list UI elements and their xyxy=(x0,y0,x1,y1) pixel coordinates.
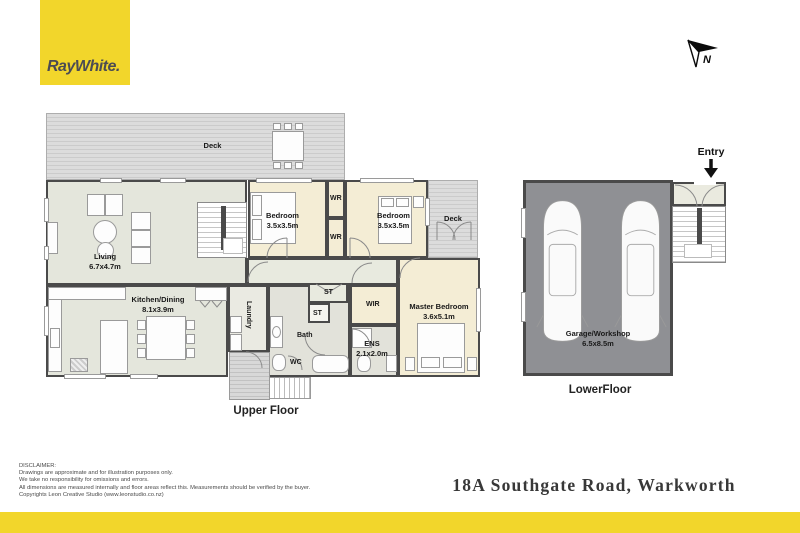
label-laundry: Laundry xyxy=(245,301,252,329)
label-deck-top: Deck xyxy=(185,141,240,151)
entry-title: Entry xyxy=(685,146,737,158)
label-st-small: ST xyxy=(313,310,322,317)
label-kitchen-dining: Kitchen/Dining 8.1x3.9m xyxy=(108,295,208,315)
disclaimer-line: All dimensions are measured internally a… xyxy=(19,485,310,492)
north-letter: N xyxy=(703,54,712,66)
disclaimer-line: Copyrights Leon Creative Studio (www.leo… xyxy=(19,492,310,499)
label-master-bedroom: Master Bedroom 3.6x5.1m xyxy=(395,302,483,322)
floorplan-page: RayWhite. N xyxy=(0,0,800,533)
label-wr-top: WR xyxy=(330,195,342,202)
disclaimer-line: Drawings are approximate and for illustr… xyxy=(19,470,310,477)
north-compass-icon: N xyxy=(686,38,728,72)
disclaimer-line: DISCLAIMER: xyxy=(19,463,310,470)
label-wir: WIR xyxy=(366,301,380,308)
label-wc: WC xyxy=(290,359,302,366)
disclaimer-line: We take no responsibility for omissions … xyxy=(19,477,310,484)
label-bath: Bath xyxy=(297,332,313,339)
disclaimer: DISCLAIMER: Drawings are approximate and… xyxy=(19,463,310,499)
entry-arrow-icon xyxy=(703,159,719,179)
label-wr-bottom: WR xyxy=(330,234,342,241)
lower-floor-title: LowerFloor xyxy=(550,384,650,396)
property-address: 18A Southgate Road, Warkworth xyxy=(433,475,755,496)
upper-floor-title: Upper Floor xyxy=(216,405,316,417)
label-garage: Garage/Workshop 6.5x8.5m xyxy=(523,329,673,349)
label-ensuite: ENS 2.1x2.0m xyxy=(350,339,394,359)
label-bedroom-1: Bedroom 3.5x3.5m xyxy=(240,211,325,231)
label-living: Living 6.7x4.7m xyxy=(60,252,150,272)
label-bedroom-2: Bedroom 3.5x3.5m xyxy=(351,211,436,231)
label-st-top: ST xyxy=(324,289,333,296)
